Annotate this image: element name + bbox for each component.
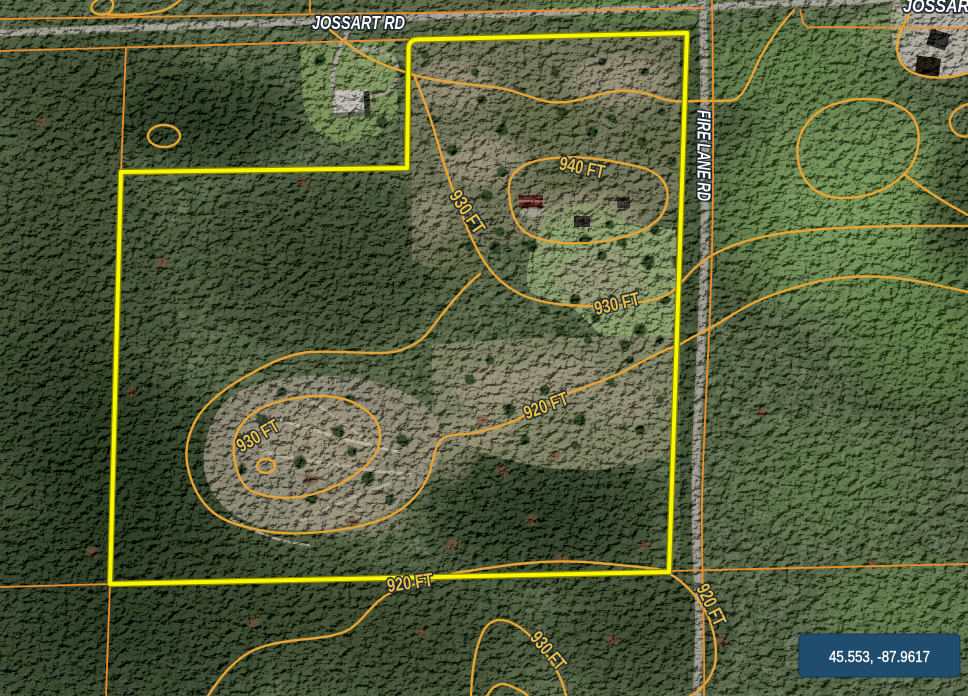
svg-text:FIRE LANE RD: FIRE LANE RD bbox=[694, 110, 714, 201]
svg-text:JOSSART R: JOSSART R bbox=[903, 0, 968, 16]
svg-text:JOSSART RD: JOSSART RD bbox=[312, 13, 405, 33]
svg-text:45.553, -87.9617: 45.553, -87.9617 bbox=[829, 649, 930, 666]
